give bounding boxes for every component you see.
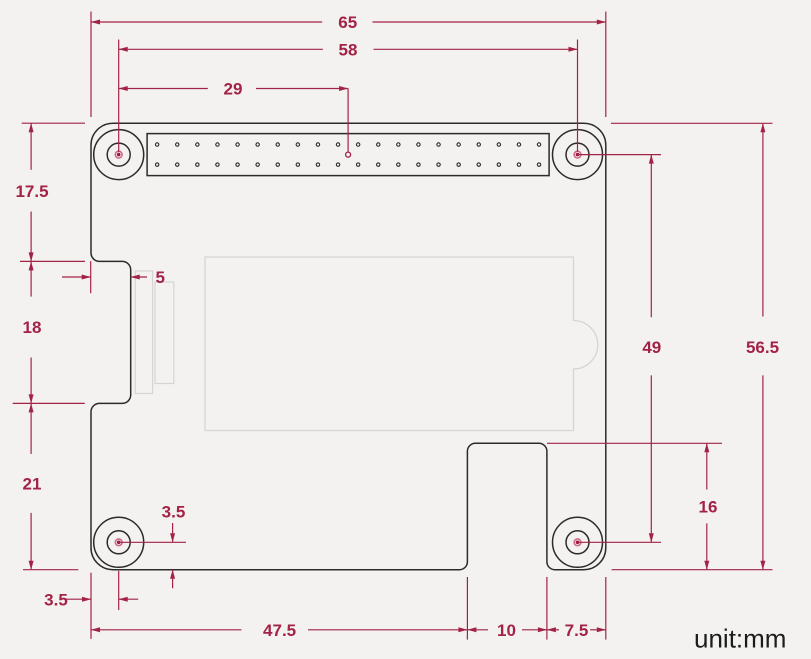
svg-text:unit:mm: unit:mm <box>694 624 786 654</box>
svg-text:56.5: 56.5 <box>746 338 779 357</box>
svg-text:7.5: 7.5 <box>565 621 589 640</box>
svg-text:17.5: 17.5 <box>15 182 48 201</box>
svg-text:49: 49 <box>642 338 661 357</box>
svg-text:3.5: 3.5 <box>162 503 186 522</box>
svg-text:5: 5 <box>155 268 164 287</box>
svg-text:21: 21 <box>23 475 42 494</box>
svg-text:29: 29 <box>224 80 243 99</box>
svg-text:65: 65 <box>338 13 357 32</box>
svg-text:47.5: 47.5 <box>263 621 296 640</box>
svg-text:58: 58 <box>339 41 358 60</box>
svg-text:16: 16 <box>699 498 718 517</box>
svg-text:3.5: 3.5 <box>44 590 68 609</box>
svg-text:10: 10 <box>497 621 516 640</box>
svg-text:18: 18 <box>23 318 42 337</box>
